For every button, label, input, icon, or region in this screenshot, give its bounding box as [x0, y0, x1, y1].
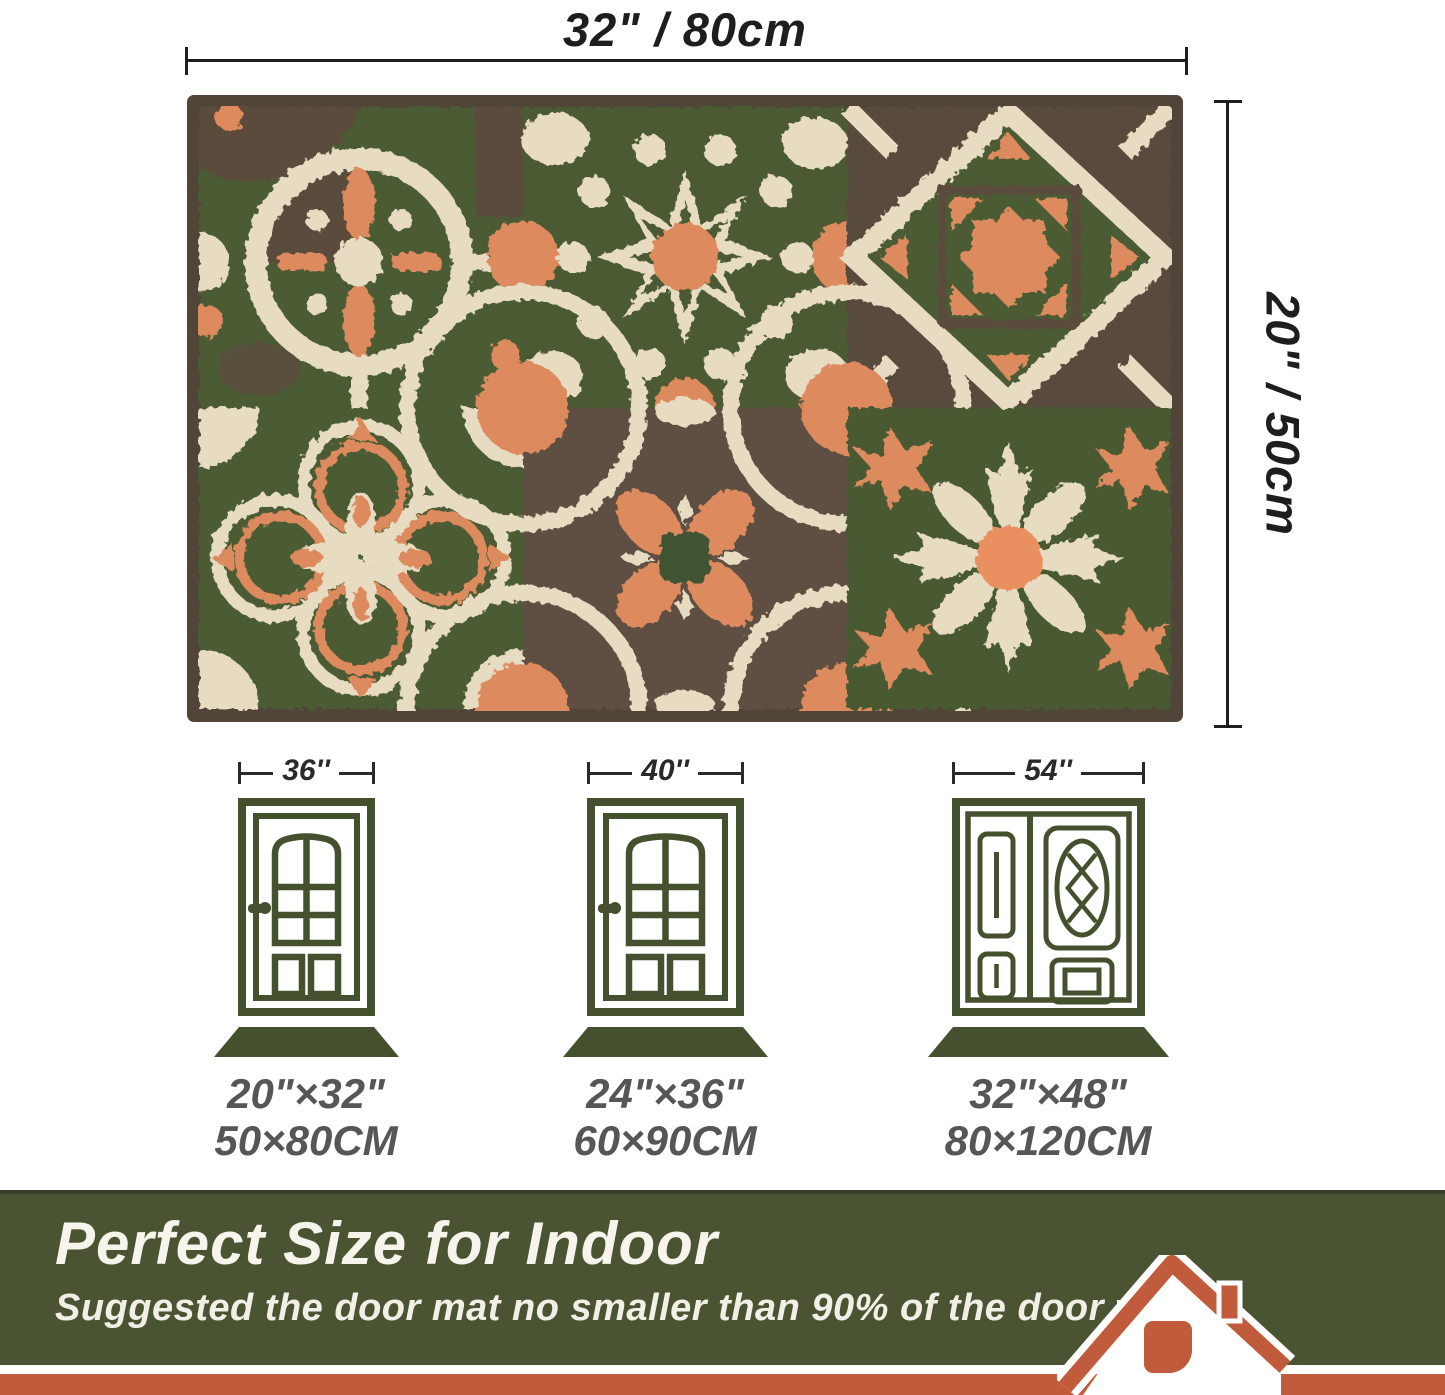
door-mat-icon	[928, 1027, 1169, 1057]
mat-size-inches: 24"×36"	[586, 1070, 744, 1117]
door-size-option-2: 40'' 24"×36" 60×90CM	[535, 760, 795, 1164]
rug-pattern	[191, 103, 1171, 722]
double-door-icon	[952, 798, 1145, 1016]
rug-image	[187, 95, 1183, 722]
banner: Perfect Size for Indoor Suggested the do…	[0, 1190, 1445, 1395]
door-width-label: 36''	[273, 754, 339, 788]
door-size-option-3: 54'' 32"×48" 80×120CM	[918, 760, 1178, 1164]
mat-size-cm: 80×120CM	[945, 1117, 1152, 1164]
dimension-tick	[1185, 47, 1188, 75]
door-mat-icon	[563, 1027, 768, 1057]
door-handle	[248, 902, 271, 914]
mat-size-inches: 20"×32"	[227, 1070, 385, 1117]
door-handle	[598, 902, 621, 914]
horizontal-dimension-line	[185, 47, 1188, 75]
mat-size-inches: 32"×48"	[969, 1070, 1127, 1117]
dimension-bar	[1226, 100, 1229, 728]
door-width-dimension: 36''	[238, 760, 375, 786]
single-door-icon	[238, 798, 375, 1016]
door-width-dimension: 54''	[952, 760, 1145, 786]
door-size-option-1: 36'' 20"×32" 50×80CM	[176, 760, 436, 1164]
house-window	[1144, 1321, 1192, 1373]
mat-size-cm: 60×90CM	[573, 1117, 756, 1164]
dimension-bar	[185, 59, 1188, 62]
vertical-dimension-line	[1214, 100, 1242, 728]
dimension-tick	[1214, 725, 1242, 728]
product-size-infographic: 32" / 80cm	[0, 0, 1445, 1395]
door-mat-icon	[214, 1027, 399, 1057]
door-width-label: 54''	[1015, 754, 1081, 788]
door-width-dimension: 40''	[587, 760, 744, 786]
door-width-label: 40''	[632, 754, 698, 788]
house-icon	[1057, 1255, 1337, 1395]
rug-height-label: 20" / 50cm	[1248, 100, 1318, 728]
mat-size-cm: 50×80CM	[214, 1117, 397, 1164]
single-door-icon	[587, 798, 744, 1016]
